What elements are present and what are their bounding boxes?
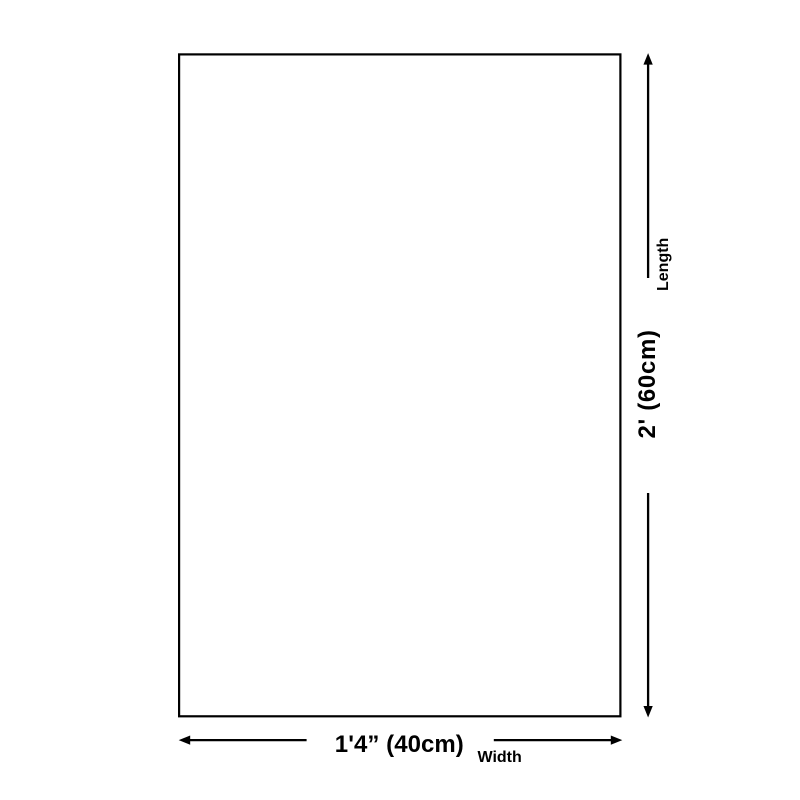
svg-text:Width: Width <box>478 749 522 766</box>
svg-text:1'4” (40cm): 1'4” (40cm) <box>335 731 464 758</box>
svg-text:2' (60cm): 2' (60cm) <box>634 330 661 439</box>
svg-text:Length: Length <box>655 238 672 291</box>
